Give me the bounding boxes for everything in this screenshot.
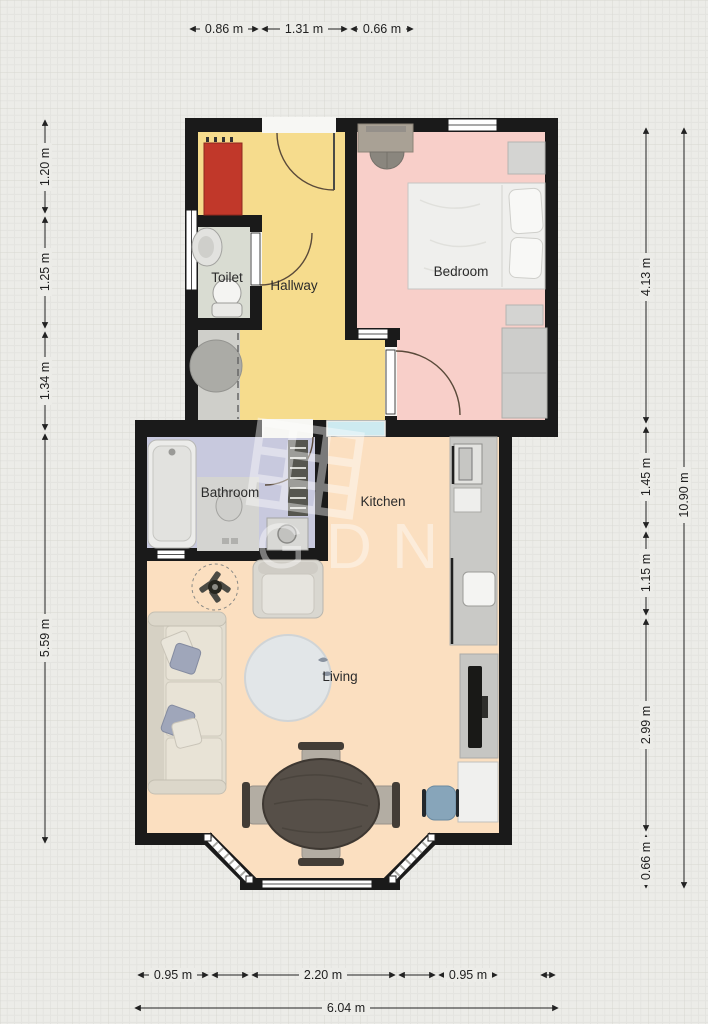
dim-label: 0.95 m xyxy=(449,968,487,982)
dim-label: 6.04 m xyxy=(327,1001,365,1015)
dim-label: 2.99 m xyxy=(639,706,653,744)
label-hallway: Hallway xyxy=(270,278,318,293)
label-toilet: Toilet xyxy=(211,270,243,285)
bedroom-window xyxy=(448,119,497,131)
floorplan-canvas: GDN Toilet Hallway Bedroom Bathroom Kitc… xyxy=(0,0,708,1024)
dim-label: 5.59 m xyxy=(38,619,52,657)
label-bedroom: Bedroom xyxy=(434,264,489,279)
coat-cabinet xyxy=(204,137,242,215)
dim-label: 1.15 m xyxy=(639,554,653,592)
watermark-text: GDN xyxy=(256,510,458,582)
dim-label: 2.20 m xyxy=(304,968,342,982)
sofa xyxy=(148,612,226,794)
dim-label: 1.34 m xyxy=(38,362,52,400)
jog-window xyxy=(358,329,388,339)
bay-window-bottom xyxy=(262,880,372,888)
dim-label: 1.20 m xyxy=(38,148,52,186)
toilet-door-leaf xyxy=(251,233,260,285)
dim-label: 0.86 m xyxy=(205,22,243,36)
dim-label: 0.66 m xyxy=(363,22,401,36)
label-living: Living xyxy=(322,669,357,684)
dim-label: 0.95 m xyxy=(154,968,192,982)
label-kitchen: Kitchen xyxy=(360,494,405,509)
pillow xyxy=(509,237,543,279)
tv xyxy=(468,666,482,748)
pillow xyxy=(509,188,544,234)
dim-label: 1.45 m xyxy=(639,458,653,496)
tv-unit xyxy=(460,654,498,758)
office-chair xyxy=(422,786,459,820)
floorplan-page: GDN Toilet Hallway Bedroom Bathroom Kitc… xyxy=(0,0,708,1024)
bathroom-window xyxy=(157,550,185,559)
nightstand-bottom xyxy=(506,305,543,325)
label-bathroom: Bathroom xyxy=(201,485,260,500)
entrance-opening xyxy=(262,117,336,133)
boiler xyxy=(190,340,242,392)
dim-label: 1.25 m xyxy=(38,253,52,291)
dim-label: 4.13 m xyxy=(639,258,653,296)
wardrobe xyxy=(502,328,547,418)
bedroom-door-leaf xyxy=(386,350,395,414)
kitchen-cabinet-box xyxy=(454,488,481,512)
pillow xyxy=(171,718,203,750)
round-rug xyxy=(245,635,331,721)
dim-label: 10.90 m xyxy=(677,472,691,517)
toilet-sink xyxy=(192,228,222,266)
oven xyxy=(453,444,482,484)
dim-label: 1.31 m xyxy=(285,22,323,36)
kitchen-sink xyxy=(463,572,495,606)
dim-label: 0.66 m xyxy=(639,842,653,880)
bathtub xyxy=(148,440,196,548)
nightstand-top xyxy=(508,142,545,174)
